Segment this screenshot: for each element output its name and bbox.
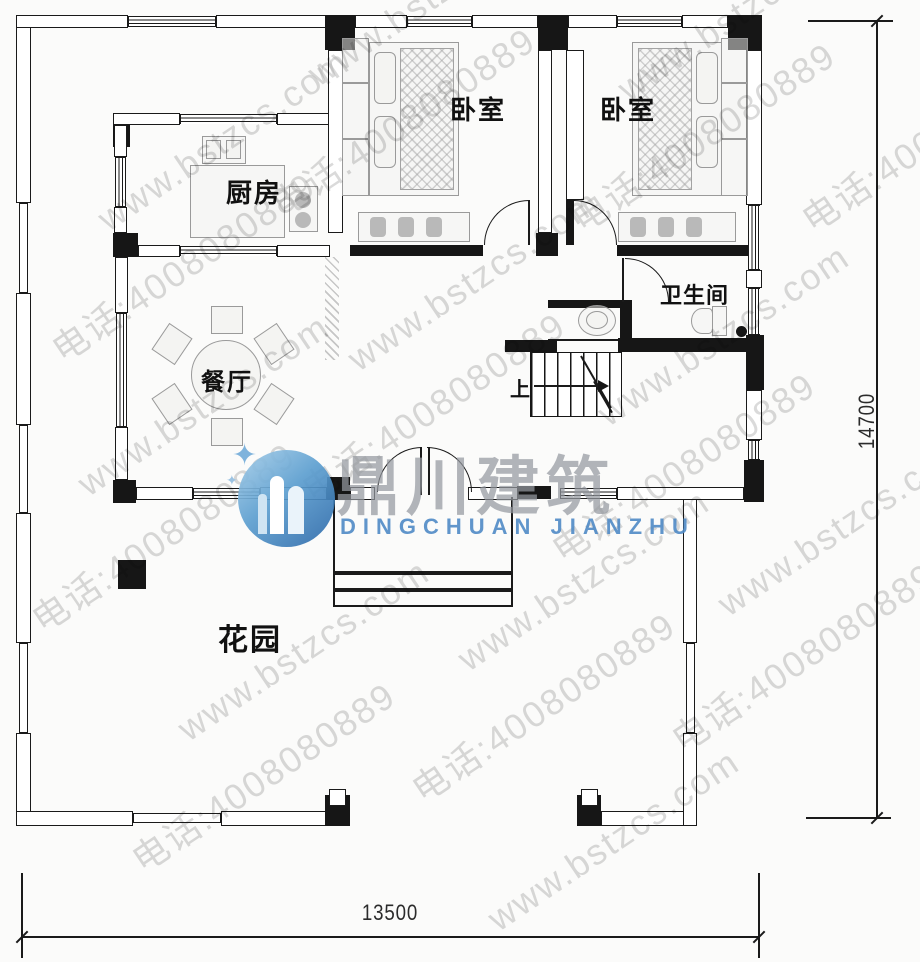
watermark-text: 电话:4008080889	[260, 13, 545, 228]
watermark-text: 电话:4008080889	[400, 598, 685, 813]
logo-sparkle-icon: ✦	[232, 438, 257, 473]
watermark-text: www.bstzcs.com	[170, 551, 437, 750]
watermark-text: www.bstzcs.com	[590, 236, 857, 435]
watermark-text: www.bstzcs.com	[300, 0, 567, 95]
floor-plan-canvas: 厨房 卧室 卧室 卫生间 餐厅 花园 上 13500 14700 www.bst…	[0, 0, 920, 962]
watermark-text: 电话:4008080889	[790, 28, 920, 243]
logo-building-shape	[270, 476, 284, 534]
watermark-text: www.bstzcs.com	[610, 0, 877, 110]
logo-name-en: DINGCHUAN JIANZHU	[340, 514, 695, 540]
watermark-text: 电话:4008080889	[660, 548, 920, 763]
logo-building-shape	[288, 486, 304, 534]
watermark-text: 电话:4008080889	[40, 158, 325, 373]
watermark-text: www.bstzcs.com	[480, 741, 747, 940]
dingchuan-logo: ✦ ✦ 鼎川建筑 DINGCHUAN JIANZHU	[236, 438, 656, 553]
logo-sparkle-icon: ✦	[226, 472, 238, 489]
watermark-text: www.bstzcs.com	[710, 426, 920, 625]
watermark-text: 电话:4008080889	[560, 28, 845, 243]
watermark-text: www.bstzcs.com	[340, 181, 607, 380]
watermark-text: 电话:4008080889	[120, 668, 405, 883]
watermark-text: www.bstzcs.com	[90, 41, 357, 240]
logo-building-shape	[258, 494, 267, 534]
